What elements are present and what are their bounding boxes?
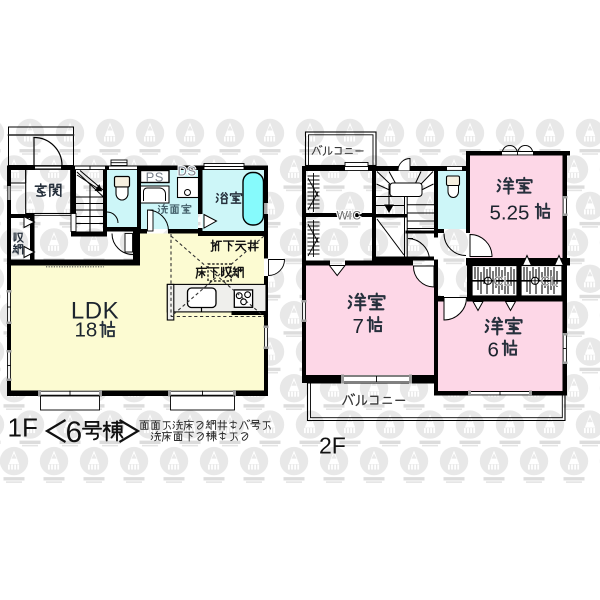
svg-text:CL: CL	[541, 274, 559, 289]
svg-text:2F: 2F	[319, 433, 346, 459]
svg-text:6: 6	[66, 416, 83, 449]
svg-text:CL: CL	[494, 274, 512, 289]
svg-text:5.25: 5.25	[490, 202, 530, 225]
svg-text:DS: DS	[177, 164, 196, 179]
svg-text:PS: PS	[146, 170, 164, 185]
svg-text:1F: 1F	[8, 413, 38, 443]
svg-text:6: 6	[488, 339, 499, 362]
svg-text:WIC: WIC	[337, 208, 362, 222]
svg-text:18: 18	[75, 319, 98, 342]
svg-text:7: 7	[353, 315, 364, 338]
